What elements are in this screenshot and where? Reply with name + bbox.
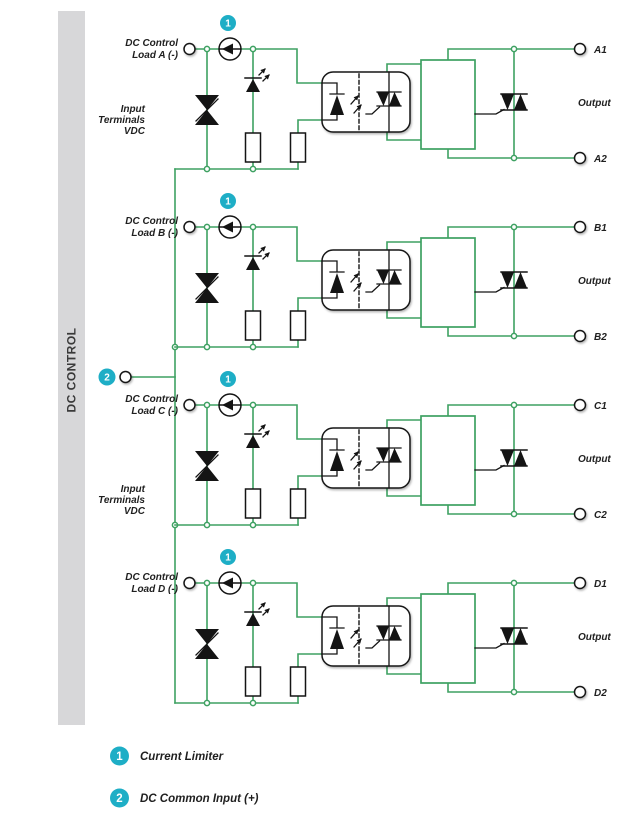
circuit-diagram: DC CONTROL 2 DC Control Load A (-) 1 Inp… [0,0,633,815]
output-label: Output [578,276,611,287]
terminal-label-2: C2 [594,510,607,521]
channel-label-line2: Load D (-) [131,584,178,595]
channel-circuit [175,371,586,528]
input-terminals-line2: Terminals [98,495,145,506]
badge-num: 1 [225,19,231,30]
legend: 1 Current Limiter 2 DC Common Input (+) [110,747,259,808]
input-terminals-line1: Input [121,484,146,495]
legend-badge-1-num: 1 [116,751,123,763]
dc-common-badge-num: 2 [104,373,110,384]
badge-num: 1 [225,553,231,564]
channel-label-line2: Load B (-) [131,228,178,239]
channel-d: DC Control Load D (-) 1 D1 Output D2 [125,549,611,706]
terminal-label-2: B2 [594,332,607,343]
terminal-label-1: D1 [594,579,607,590]
terminal-label-1: B1 [594,223,607,234]
dc-common-terminal [120,372,131,383]
channel-a: DC Control Load A (-) 1 Input Terminals … [98,15,611,172]
channel-label-line1: DC Control [125,216,178,227]
output-label: Output [578,632,611,643]
legend-item-current-limiter: 1 Current Limiter [110,747,224,766]
channel-b: DC Control Load B (-) 1 B1 Output B2 [125,193,611,350]
badge-num: 1 [225,375,231,386]
schematic-svg: DC CONTROL 2 DC Control Load A (-) 1 Inp… [0,0,633,815]
sidebar-label: DC CONTROL [65,328,79,413]
legend-label-2: DC Common Input (+) [140,793,259,805]
channel-label-line1: DC Control [125,572,178,583]
legend-badge-2-num: 2 [116,793,122,805]
terminal-label-2: A2 [593,154,607,165]
output-label: Output [578,98,611,109]
channel-label-line1: DC Control [125,394,178,405]
channel-label-line2: Load A (-) [132,50,179,61]
input-terminals-line2: Terminals [98,115,145,126]
terminal-label-1: C1 [594,401,607,412]
legend-item-dc-common: 2 DC Common Input (+) [110,789,259,808]
badge-num: 1 [225,197,231,208]
channel-label-line2: Load C (-) [131,406,178,417]
channel-circuit [175,549,586,706]
channel-circuit [175,15,586,172]
terminal-label-2: D2 [594,688,607,699]
output-label: Output [578,454,611,465]
legend-label-1: Current Limiter [140,751,224,763]
terminal-label-1: A1 [593,45,607,56]
dc-common-input: 2 [99,369,176,386]
channel-label-line1: DC Control [125,38,178,49]
input-terminals-line3: VDC [124,506,146,517]
input-terminals-line1: Input [121,104,146,115]
input-terminals-line3: VDC [124,126,146,137]
channel-circuit [175,193,586,350]
